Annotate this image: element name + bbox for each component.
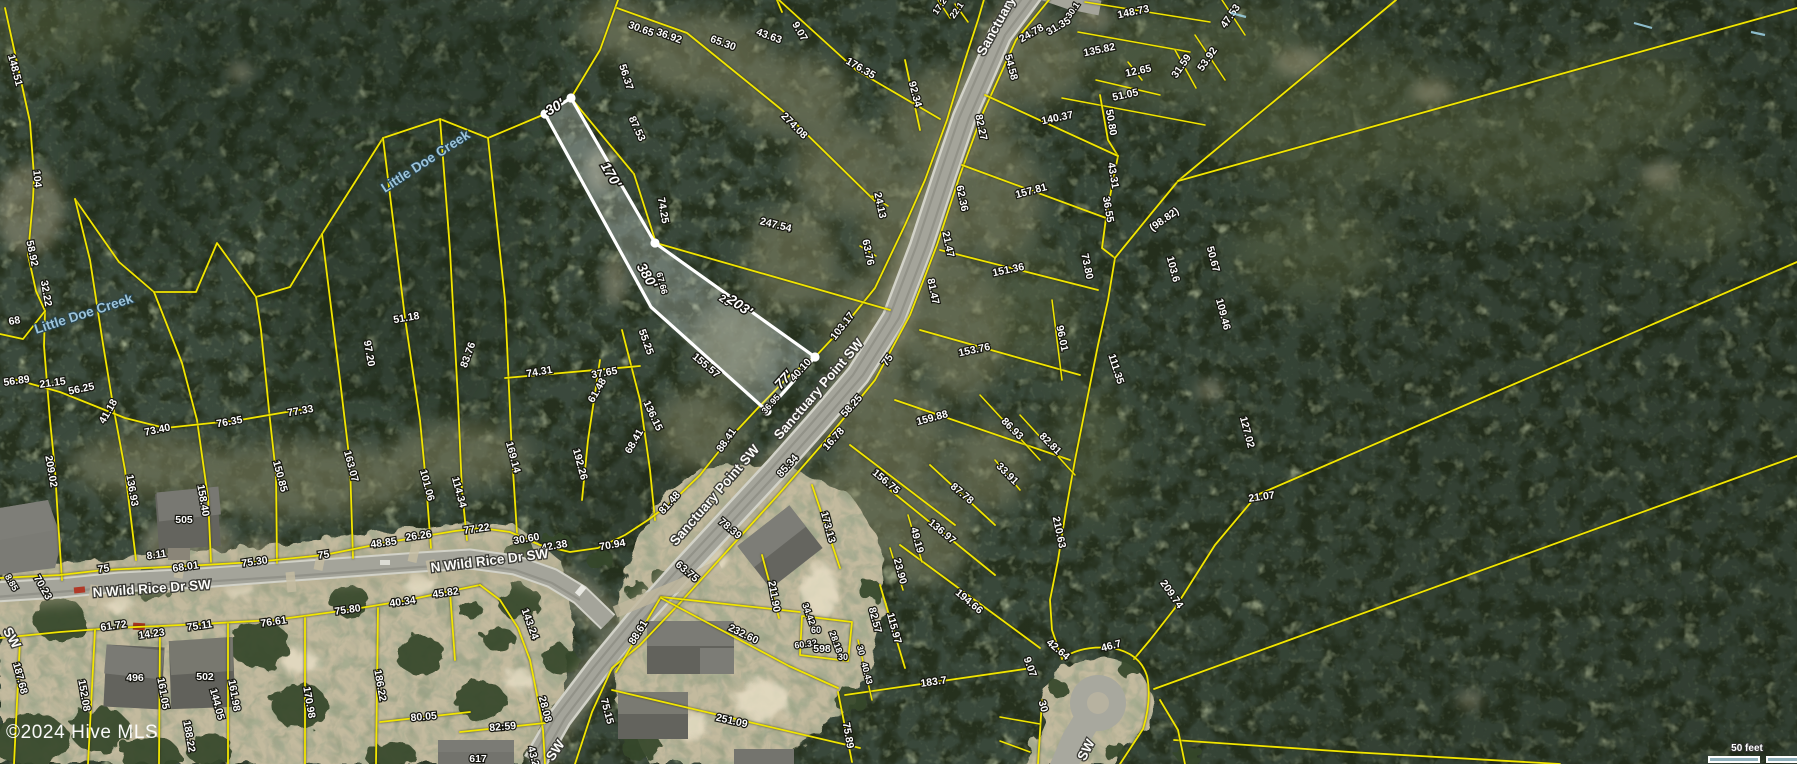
svg-text:80.05: 80.05 <box>410 710 437 724</box>
svg-text:496: 496 <box>126 672 144 684</box>
svg-text:82:59: 82:59 <box>489 720 517 734</box>
svg-text:50 feet: 50 feet <box>1731 743 1763 754</box>
svg-text:68: 68 <box>8 314 22 328</box>
svg-text:502: 502 <box>196 671 214 683</box>
svg-text:75: 75 <box>97 562 110 576</box>
svg-text:505: 505 <box>175 514 193 526</box>
svg-text:60: 60 <box>811 625 821 635</box>
svg-text:75: 75 <box>317 548 330 562</box>
svg-text:104: 104 <box>30 169 43 188</box>
svg-text:617: 617 <box>469 753 487 764</box>
svg-text:598: 598 <box>813 643 831 655</box>
svg-text:©2024 Hive MLS: ©2024 Hive MLS <box>6 722 158 743</box>
svg-text:30: 30 <box>838 652 848 662</box>
